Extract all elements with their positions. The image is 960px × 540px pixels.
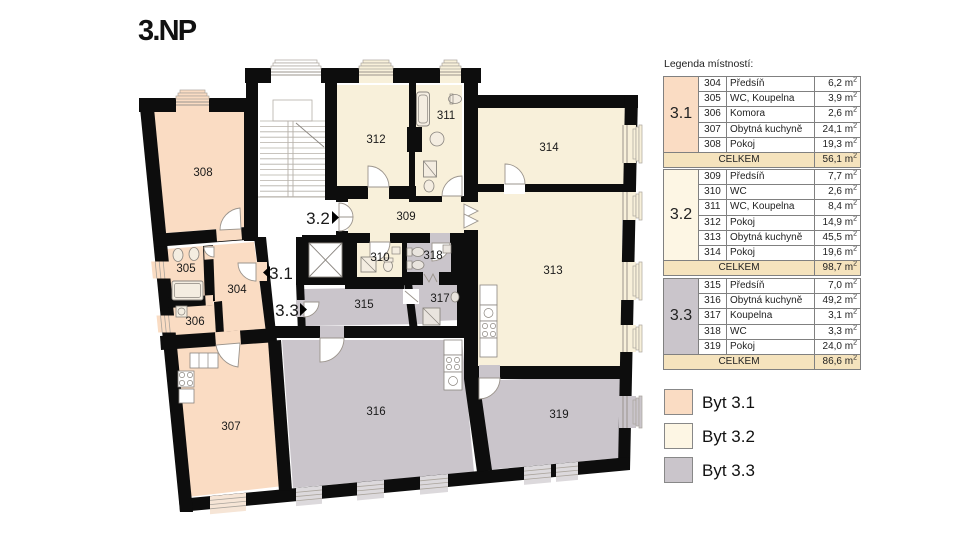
svg-text:3.2: 3.2 (306, 209, 330, 228)
svg-text:318: 318 (423, 250, 442, 262)
svg-text:305: 305 (176, 263, 195, 275)
svg-text:306: 306 (185, 316, 204, 328)
svg-text:317: 317 (430, 293, 449, 305)
svg-text:3.1: 3.1 (269, 264, 293, 283)
svg-text:309: 309 (396, 211, 415, 223)
svg-text:3.3: 3.3 (275, 301, 299, 320)
svg-text:312: 312 (366, 134, 385, 146)
svg-text:315: 315 (354, 299, 373, 311)
svg-text:314: 314 (539, 142, 559, 154)
svg-text:319: 319 (549, 409, 568, 421)
svg-text:316: 316 (366, 406, 385, 418)
svg-text:313: 313 (543, 265, 562, 277)
svg-text:304: 304 (227, 284, 247, 296)
svg-text:311: 311 (437, 110, 455, 122)
svg-text:308: 308 (193, 167, 212, 179)
svg-text:307: 307 (221, 421, 240, 433)
svg-text:310: 310 (370, 252, 389, 264)
